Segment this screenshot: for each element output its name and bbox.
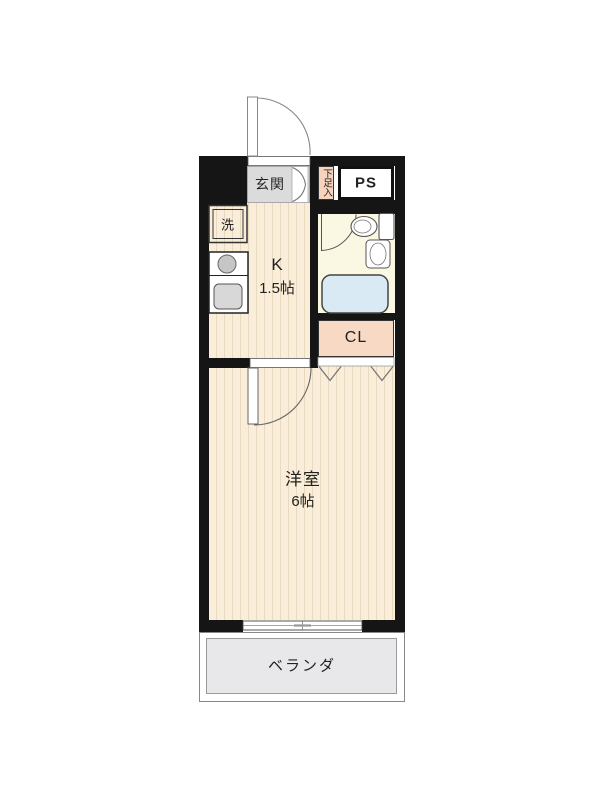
closet-folding-door-chevron-left <box>319 367 341 381</box>
entrance-door-swing-arc <box>258 98 311 155</box>
western-room-label-size: 6帖 <box>285 491 321 513</box>
kitchen-label: K 1.5帖 <box>259 253 295 301</box>
western-room-label-name: 洋室 <box>285 469 321 491</box>
pipe-space-label: PS <box>355 175 377 192</box>
genkan-label: 玄関 <box>255 174 285 194</box>
entrance-opening <box>248 157 310 166</box>
closet-label: CL <box>345 329 367 347</box>
toilet-tank-icon <box>379 214 394 240</box>
veranda-label: ベランダ <box>268 655 336 676</box>
bathroom-door-swing-arc <box>322 215 357 251</box>
kitchen-sink-icon <box>214 284 242 309</box>
closet-opening <box>318 358 394 367</box>
room-door-swing-arc <box>254 368 311 425</box>
kitchen-label-letter: K <box>259 253 295 277</box>
fixtures-layer <box>0 0 600 800</box>
stove-burner-icon <box>218 255 236 273</box>
floor-plan: 玄関 下足入 PS 洗 K 1.5帖 CL 洋室 6帖 ベランダ <box>0 0 600 800</box>
room-door-opening <box>250 359 310 368</box>
kitchen-label-size: 1.5帖 <box>259 277 295 301</box>
closet-folding-door-chevron-right <box>371 367 393 381</box>
bathtub-icon <box>322 275 388 313</box>
entrance-door-leaf <box>248 97 258 156</box>
toilet-bowl-icon <box>351 217 377 237</box>
western-room-label: 洋室 6帖 <box>285 469 321 513</box>
washer-label: 洗 <box>221 215 234 234</box>
room-door-leaf <box>248 368 258 424</box>
shoe-box-label: 下足入 <box>319 169 333 198</box>
basin-bowl-inner <box>370 243 386 265</box>
